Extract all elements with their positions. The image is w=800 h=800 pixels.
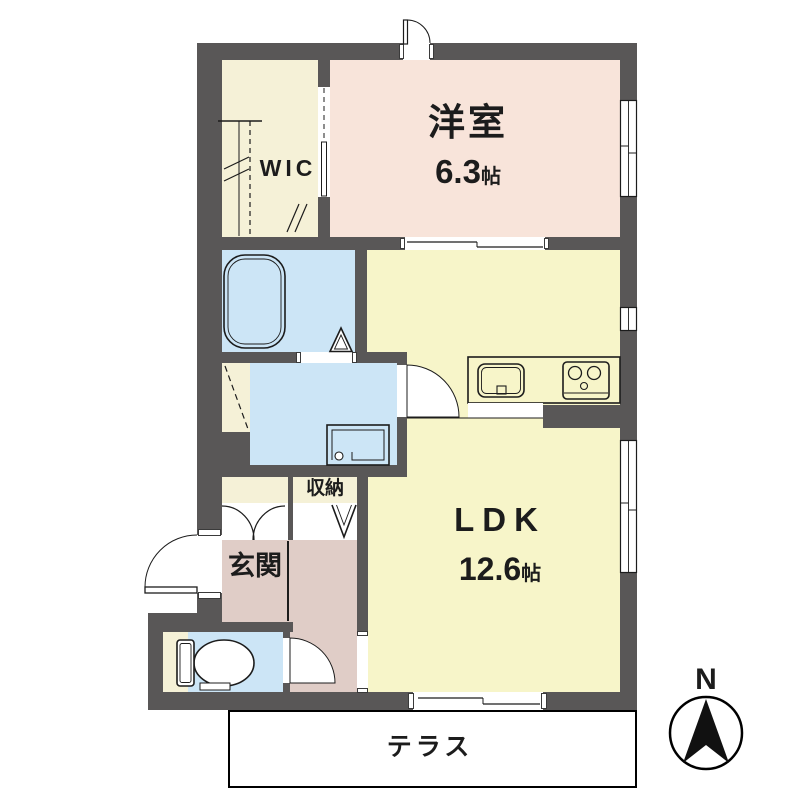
toilet-door-opening bbox=[283, 638, 290, 683]
storage-label: 収納 bbox=[291, 479, 359, 499]
door-jamb bbox=[429, 44, 434, 59]
room-western-floor bbox=[330, 60, 620, 237]
door-jamb bbox=[400, 238, 405, 249]
ldk-size: 12.6帖 bbox=[400, 553, 600, 587]
toilet-side-shelf bbox=[163, 632, 188, 692]
size-value: 12.6 bbox=[459, 551, 521, 587]
wall-right bbox=[620, 43, 637, 710]
door-jamb bbox=[296, 352, 301, 363]
wic-label: WIC bbox=[240, 156, 336, 180]
room-wic-floor bbox=[220, 60, 318, 237]
door-jamb bbox=[198, 592, 221, 599]
ldk-label: LDK bbox=[400, 503, 600, 538]
size-unit: 帖 bbox=[521, 563, 541, 585]
wall-left-upper bbox=[197, 43, 222, 535]
wall-kitchen-block bbox=[543, 405, 637, 428]
floorplan: 洋室 6.3帖 LDK 12.6帖 WIC 玄関 収納 テラス N bbox=[0, 0, 800, 800]
entrance-label: 玄関 bbox=[200, 552, 310, 580]
door-jamb bbox=[408, 693, 414, 709]
western-room-door-opening bbox=[403, 43, 430, 60]
western-ldk-sliding-door bbox=[405, 237, 545, 250]
wall-toilet-top bbox=[148, 613, 197, 632]
wall-bath-right bbox=[355, 250, 367, 352]
door-jamb bbox=[357, 688, 368, 693]
western-room-size: 6.3帖 bbox=[368, 155, 568, 190]
north-label: N bbox=[686, 664, 726, 696]
entrance-door-icon bbox=[145, 535, 197, 593]
shoe-cabinet-doors bbox=[220, 503, 288, 540]
room-toilet-floor bbox=[188, 632, 283, 692]
western-room-label: 洋室 bbox=[368, 104, 568, 143]
room-ldk-floor-upper bbox=[367, 250, 620, 352]
door-jamb bbox=[399, 44, 404, 59]
room-bath-floor bbox=[220, 250, 355, 352]
size-unit: 帖 bbox=[481, 166, 501, 188]
western-room-door-icon bbox=[404, 20, 431, 44]
storage-door bbox=[296, 503, 355, 540]
north-arrow-icon bbox=[670, 697, 742, 769]
door-jamb bbox=[352, 352, 357, 363]
terrace-label: テラス bbox=[350, 734, 510, 760]
wall-nook-block bbox=[222, 432, 250, 477]
wall-entrance-bottom bbox=[197, 622, 293, 632]
door-jamb bbox=[198, 529, 221, 536]
door-jamb bbox=[357, 631, 368, 636]
room-washroom-floor bbox=[250, 363, 397, 465]
wall-hallway-right bbox=[357, 477, 368, 635]
shoe-cabinet-body bbox=[220, 477, 288, 503]
door-jamb bbox=[544, 238, 549, 249]
washroom-nook-floor bbox=[222, 363, 250, 432]
bath-door-opening bbox=[300, 352, 353, 363]
door-jamb bbox=[541, 693, 547, 709]
hallway-ldk-opening bbox=[357, 635, 368, 690]
terrace-sliding-door bbox=[413, 692, 543, 710]
wall-bottom bbox=[148, 692, 637, 710]
size-value: 6.3 bbox=[435, 153, 481, 190]
washroom-door-opening bbox=[397, 365, 407, 417]
wall-washroom-bottom bbox=[250, 465, 407, 477]
wic-door-opening bbox=[318, 87, 330, 197]
